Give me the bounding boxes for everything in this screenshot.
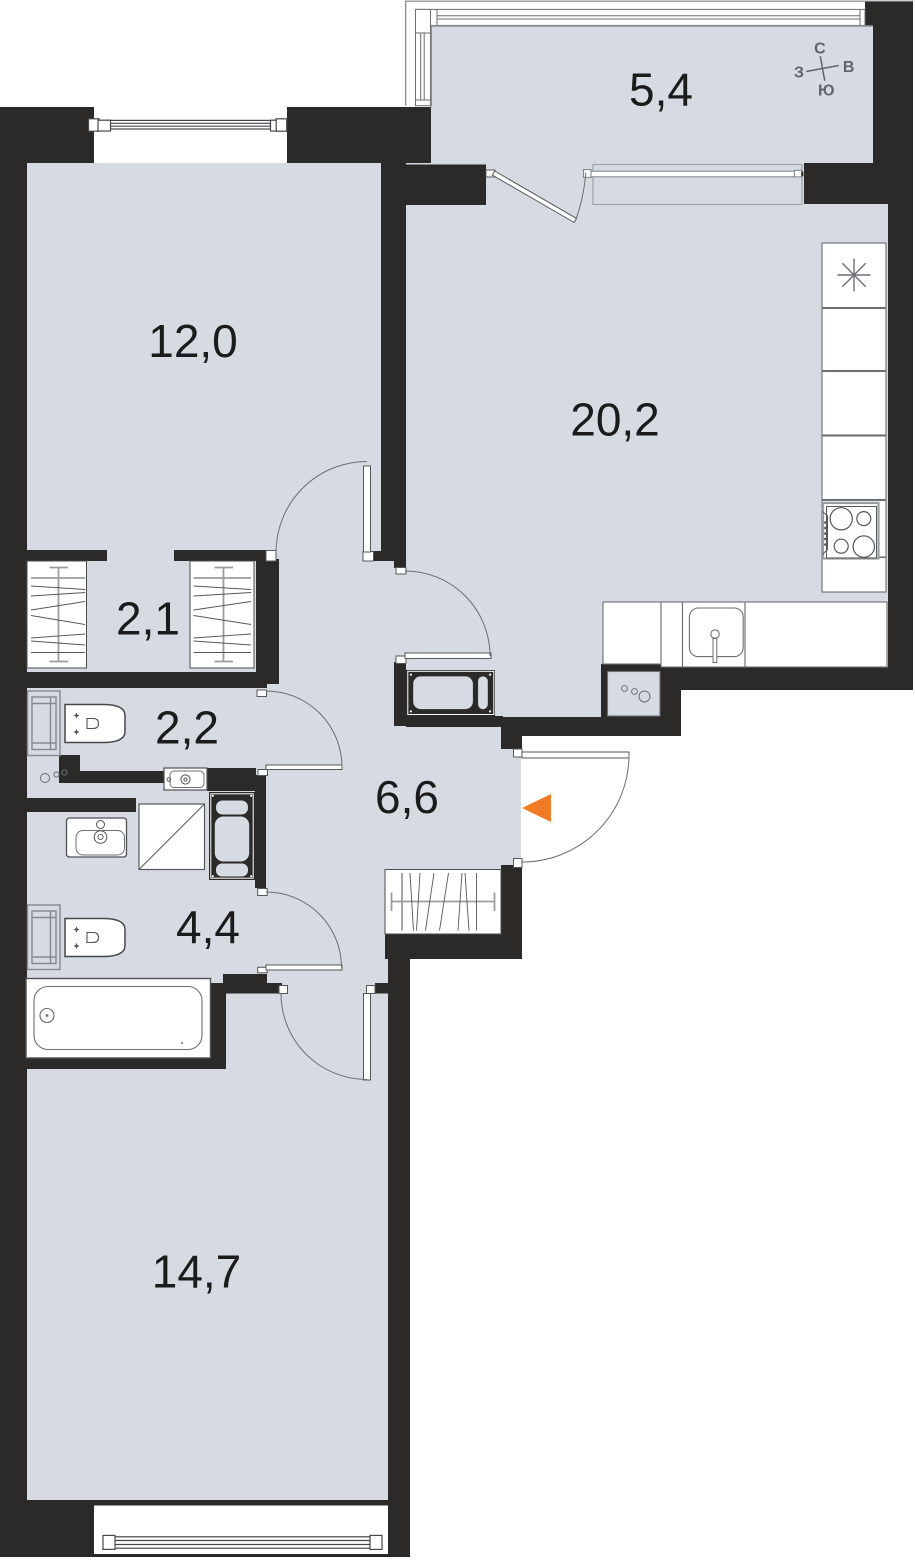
svg-text:С: С (814, 40, 826, 57)
svg-text:12,0: 12,0 (148, 315, 238, 367)
svg-text:20,2: 20,2 (570, 394, 660, 446)
svg-text:14,7: 14,7 (152, 1246, 242, 1298)
svg-text:В: В (843, 59, 855, 76)
svg-text:4,4: 4,4 (176, 901, 240, 953)
svg-text:Ю: Ю (818, 83, 835, 100)
svg-text:2,2: 2,2 (155, 702, 219, 754)
svg-text:5,4: 5,4 (629, 64, 693, 116)
svg-text:З: З (794, 65, 804, 82)
svg-text:2,1: 2,1 (116, 593, 180, 645)
svg-text:6,6: 6,6 (375, 771, 439, 823)
